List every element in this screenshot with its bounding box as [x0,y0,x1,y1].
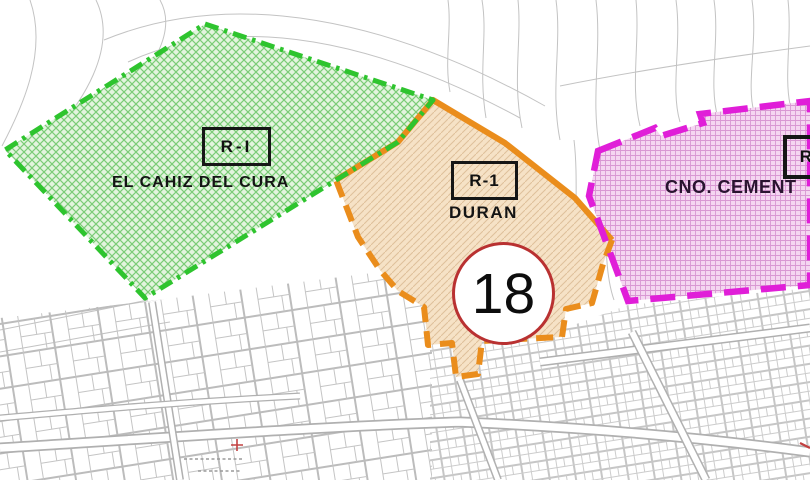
zone-name-duran: DURAN [449,203,518,223]
zone-code-box-cno-cement: R-1 [783,135,810,179]
zoning-map: R-I EL CAHIZ DEL CURA R-1 DURAN CNO. CEM… [0,0,810,480]
zone-code-box-el-cahiz: R-I [202,127,271,166]
zone-name-el-cahiz: EL CAHIZ DEL CURA [112,174,289,192]
zone-code-box-duran: R-1 [451,161,518,200]
zone-name-cno-cement: CNO. CEMENT [665,177,797,198]
sector-number-marker: 18 [452,242,555,345]
base-map-canvas [0,0,810,480]
